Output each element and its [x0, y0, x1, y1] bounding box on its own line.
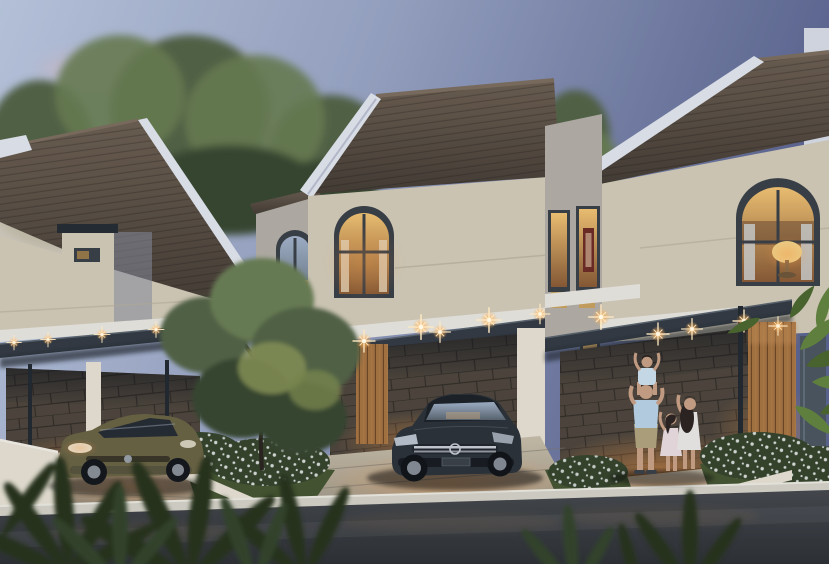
- dusk-tint: [0, 0, 829, 564]
- scene: [0, 0, 829, 564]
- twilight-house-rendering: [0, 0, 829, 564]
